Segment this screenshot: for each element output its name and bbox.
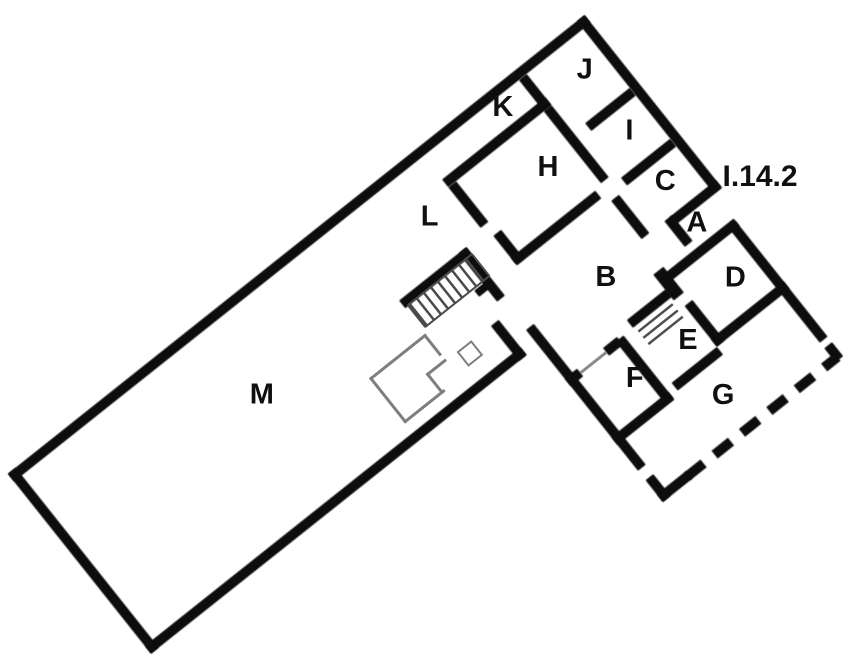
counter-outline-top [369, 333, 427, 380]
wall-h-west-upper [448, 181, 488, 228]
counter-inner-return [426, 372, 445, 394]
address-label: I.14.2 [722, 162, 797, 192]
room-label-G: G [712, 381, 735, 410]
room-label-E: E [678, 326, 697, 355]
floor-plan-figure: MLKJIHCABDEFGI.14.2 [0, 0, 853, 662]
f-door-sill-line [580, 351, 608, 374]
room-label-A: A [686, 208, 707, 237]
wall-d-south [711, 281, 790, 347]
room-label-I: I [625, 116, 633, 145]
room-label-M: M [250, 381, 274, 410]
wall-g-dashed-south [684, 353, 840, 480]
wall-h-south [511, 191, 602, 266]
wall-outer-west-end [8, 468, 159, 654]
wall-c-west [611, 195, 649, 240]
counter-small-square [457, 340, 484, 367]
room-label-B: B [595, 263, 616, 292]
room-label-F: F [626, 364, 644, 393]
room-label-D: D [725, 263, 746, 292]
room-label-H: H [537, 153, 558, 182]
counter-outline-right [423, 333, 442, 356]
room-label-J: J [577, 56, 593, 85]
room-label-L: L [421, 203, 439, 232]
room-label-C: C [655, 167, 676, 196]
wall-m-south [145, 347, 527, 654]
counter-outline-left [369, 376, 407, 423]
wall-f-south [611, 392, 674, 445]
room-label-K: K [492, 93, 513, 122]
